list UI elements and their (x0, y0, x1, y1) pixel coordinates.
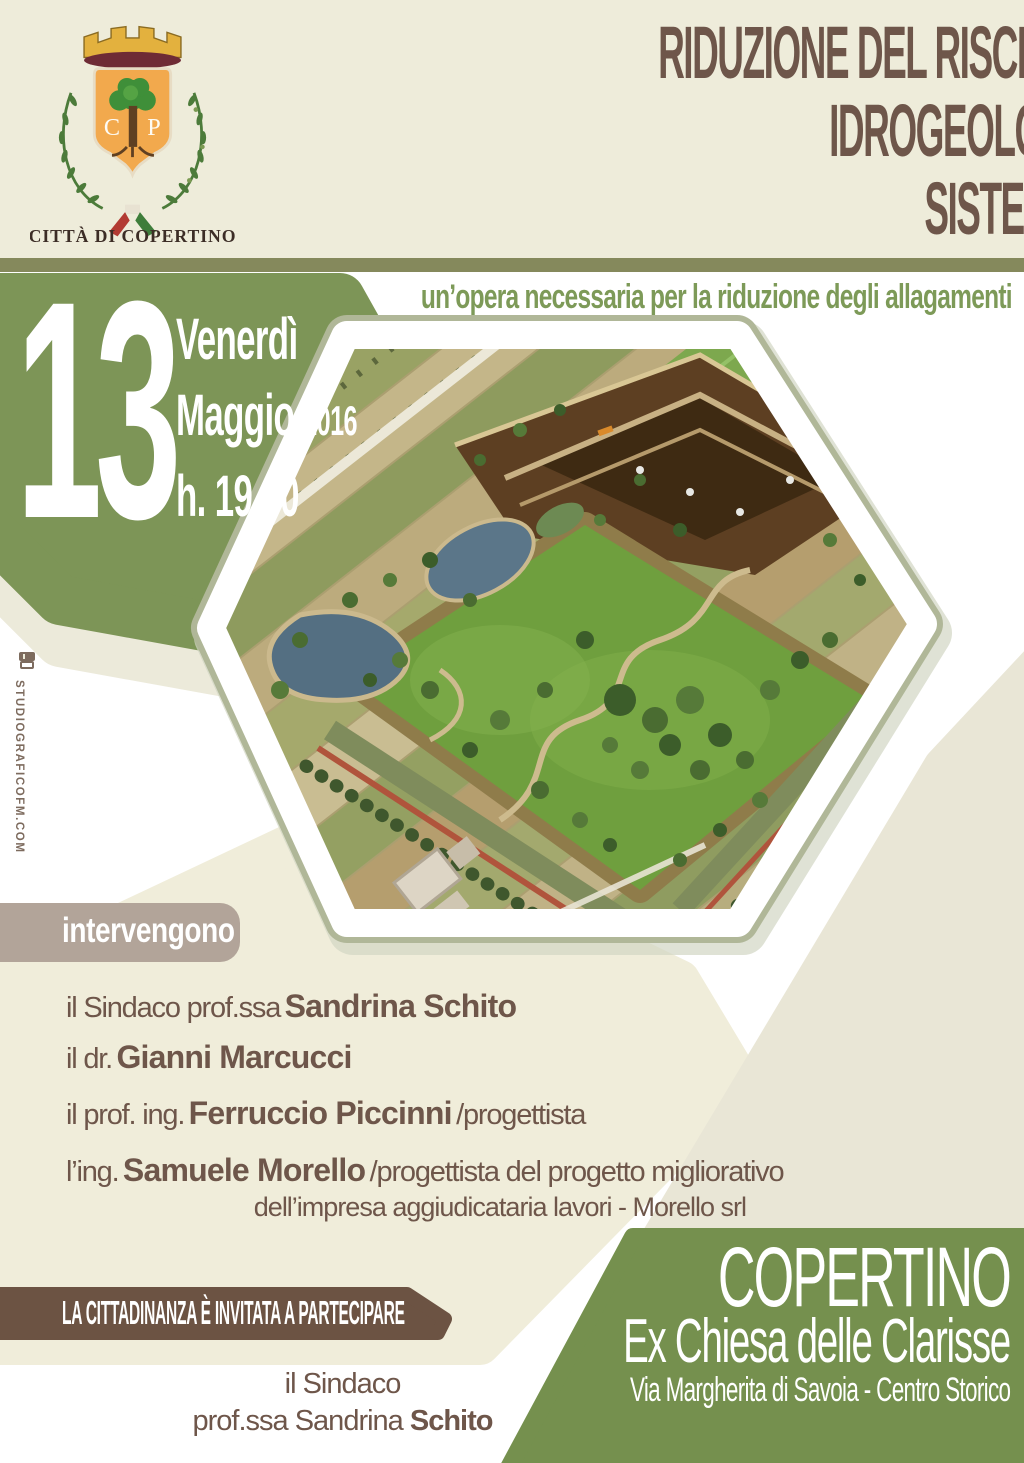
venue-place: Ex Chiesa delle Clarisse (623, 1313, 1010, 1370)
poster-title: RIDUZIONE DEL RISCHIO IDROGEOLOGICO ED I… (238, 14, 1008, 248)
speakers-list: il Sindaco prof.ssa Sandrina Schito il d… (66, 988, 796, 1223)
shield-initial-left: C (104, 114, 120, 141)
studio-credit: STUDIOGRAFICOFM.COM (13, 650, 41, 854)
venue-block: COPERTINO Ex Chiesa delle Clarisse Via M… (386, 1241, 1010, 1410)
subtitle-text: un’opera necessaria per la riduzione deg… (421, 279, 1012, 315)
speaker-prefix: il dr. (66, 1043, 112, 1075)
speaker-prefix: l’ing. (66, 1156, 118, 1188)
speaker-name: Sandrina Schito (285, 988, 517, 1024)
speaker-name: Gianni Marcucci (116, 1039, 351, 1075)
speaker-name: Ferruccio Piccinni (189, 1095, 452, 1131)
speaker-row: il prof. ing. Ferruccio Piccinni /proget… (66, 1095, 796, 1132)
studio-logo-icon (16, 650, 38, 670)
event-date: Venerdì Maggio 2016 h. 19,30 (176, 302, 478, 535)
speaker-row: il dr. Gianni Marcucci (66, 1039, 796, 1076)
speaker-prefix: il prof. ing. (66, 1099, 184, 1131)
event-weekday: Venerdì (176, 302, 298, 378)
title-line-2: IDROGEOLOGICO ED IDRAULICO E (829, 92, 1024, 170)
title-line-1: RIDUZIONE DEL RISCHIO (658, 14, 1024, 92)
speaker-role: /progettista del progetto migliorativo (370, 1156, 784, 1188)
speaker-row: l’ing. Samuele Morello /progettista del … (66, 1152, 796, 1189)
speaker-name: Samuele Morello (123, 1152, 365, 1188)
crown-icon (84, 27, 181, 69)
city-coat-of-arms: C P CITTÀ DI COPER (30, 8, 235, 256)
event-time: h. 19,30 (176, 459, 299, 535)
event-month: Maggio (176, 383, 294, 448)
speakers-heading-badge: intervengono (0, 903, 240, 962)
title-line-3: SISTEMAZIONE DELLA VORA S. ISIDORO (924, 170, 1024, 248)
studio-credit-text: STUDIOGRAFICOFM.COM (13, 680, 25, 854)
speaker-role-continuation: dell’impresa aggiudicataria lavori - Mor… (66, 1192, 746, 1223)
speaker-role: /progettista (456, 1099, 585, 1131)
invitation-text: LA CITTADINANZA È INVITATA A PARTECIPARE (62, 1294, 405, 1332)
speaker-row: il Sindaco prof.ssa Sandrina Schito (66, 988, 796, 1025)
venue-city: COPERTINO (718, 1241, 1010, 1313)
speaker-prefix: il Sindaco prof.ssa (66, 992, 280, 1024)
event-year: 2016 (303, 397, 357, 444)
speakers-heading: intervengono (62, 903, 235, 959)
shield-icon: C P (94, 69, 170, 175)
shield-initial-right: P (147, 114, 160, 141)
venue-address: Via Margherita di Savoia - Centro Storic… (630, 1370, 1010, 1410)
